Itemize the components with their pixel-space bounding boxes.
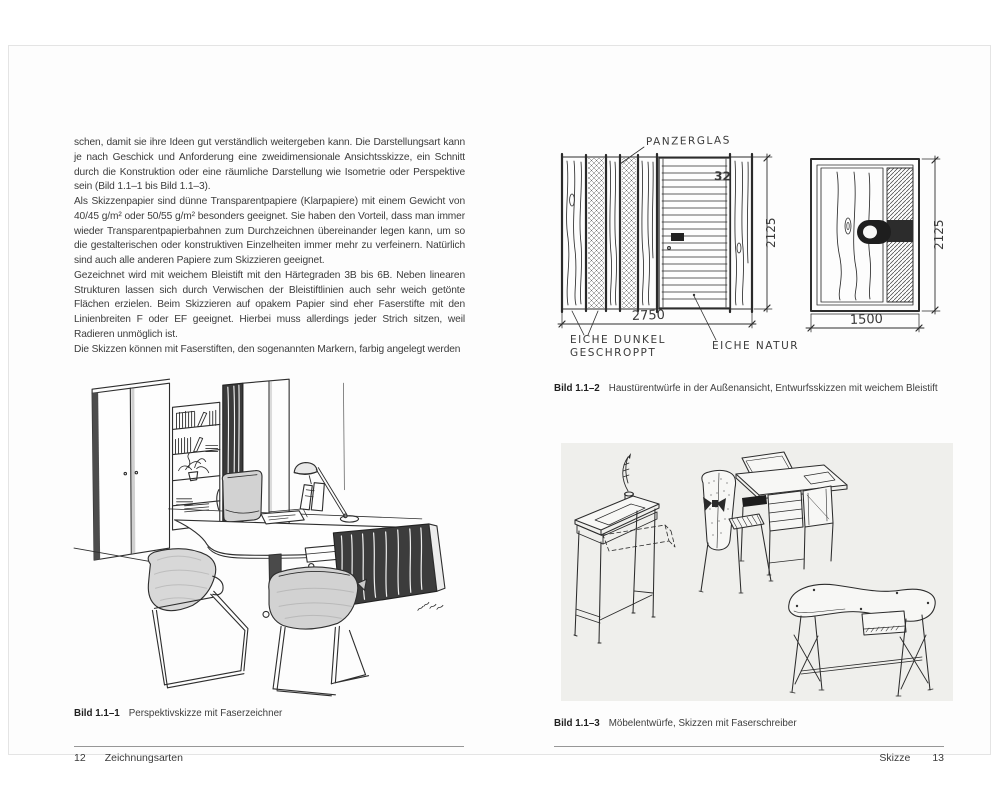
desk-lamp: [294, 463, 317, 474]
furniture-sketches: [561, 443, 953, 701]
page-footer-right: Skizze 13: [554, 752, 944, 764]
visitor-chair-right: [269, 567, 358, 629]
running-title-left: Zeichnungsarten: [105, 752, 183, 764]
label-eiche-dunkel: EICHE DUNKEL: [570, 334, 666, 346]
caption-text: Perspektivskizze mit Faserzeichner: [129, 708, 283, 719]
dim-2125-left: 2125: [764, 217, 778, 248]
hanging-drawer: [862, 611, 906, 635]
visitor-chair-left: [148, 549, 216, 611]
page-spread: schen, damit sie ihre Ideen gut verständ…: [8, 45, 991, 755]
running-title-right: Skizze: [879, 752, 910, 764]
figure-caption-1-1-2: Bild 1.1–2 Haustürentwürfe in der Außena…: [554, 383, 954, 394]
dim-2750: 2750: [632, 308, 666, 324]
caption-label: Bild 1.1–2: [554, 383, 600, 394]
quill: [623, 457, 628, 491]
figure-caption-1-1-3: Bild 1.1–3 Möbelentwürfe, Skizzen mit Fa…: [554, 718, 946, 729]
dim-1500: 1500: [850, 312, 884, 328]
letter-slot: [671, 233, 684, 241]
body-text-column: schen, damit sie ihre Ideen gut verständ…: [74, 136, 465, 357]
paragraph-4: Die Skizzen können mit Faserstiften, den…: [74, 343, 465, 358]
lectern-top: [575, 496, 659, 530]
book-spread-canvas: schen, damit sie ihre Ideen gut verständ…: [0, 0, 1000, 800]
door-elevation-sketch: PANZERGLAS EICHE DUNKEL GESCHROPPT EICHE…: [554, 128, 957, 377]
page-footer-left: 12 Zeichnungsarten: [74, 752, 464, 764]
label-geschroppt: GESCHROPPT: [570, 347, 656, 359]
office-perspective-sketch: [72, 377, 454, 697]
caption-text: Möbelentwürfe, Skizzen mit Faserschreibe…: [609, 718, 797, 729]
label-panzerglas: PANZERGLAS: [646, 135, 731, 148]
plant-scribble: [179, 453, 209, 473]
glass-panel-hatch: [588, 158, 604, 308]
plant-pot: [189, 472, 198, 481]
paragraph-3: Gezeichnet wird mit weichem Bleistift mi…: [74, 269, 465, 343]
paragraph-2: Als Skizzenpapier sind dünne Transparent…: [74, 195, 465, 269]
caption-text: Haustürentwürfe in der Außenansicht, Ent…: [609, 383, 938, 394]
footer-rule-right: [554, 746, 944, 747]
page-number-right: 13: [932, 752, 944, 764]
page-number-left: 12: [74, 752, 86, 764]
figure-caption-1-1-1: Bild 1.1–1 Perspektivskizze mit Faserzei…: [74, 708, 466, 719]
furniture-figure-box: [561, 443, 953, 701]
dim-2125-right: 2125: [932, 219, 946, 250]
footer-rule-left: [74, 746, 464, 747]
label-eiche-natur: EICHE NATUR: [712, 340, 799, 352]
office-chair: [222, 471, 262, 522]
house-number: 32: [714, 169, 731, 184]
paragraph-1: schen, damit sie ihre Ideen gut verständ…: [74, 136, 465, 195]
caption-label: Bild 1.1–3: [554, 718, 600, 729]
caption-label: Bild 1.1–1: [74, 708, 120, 719]
glass-panel-hatch: [622, 158, 636, 308]
